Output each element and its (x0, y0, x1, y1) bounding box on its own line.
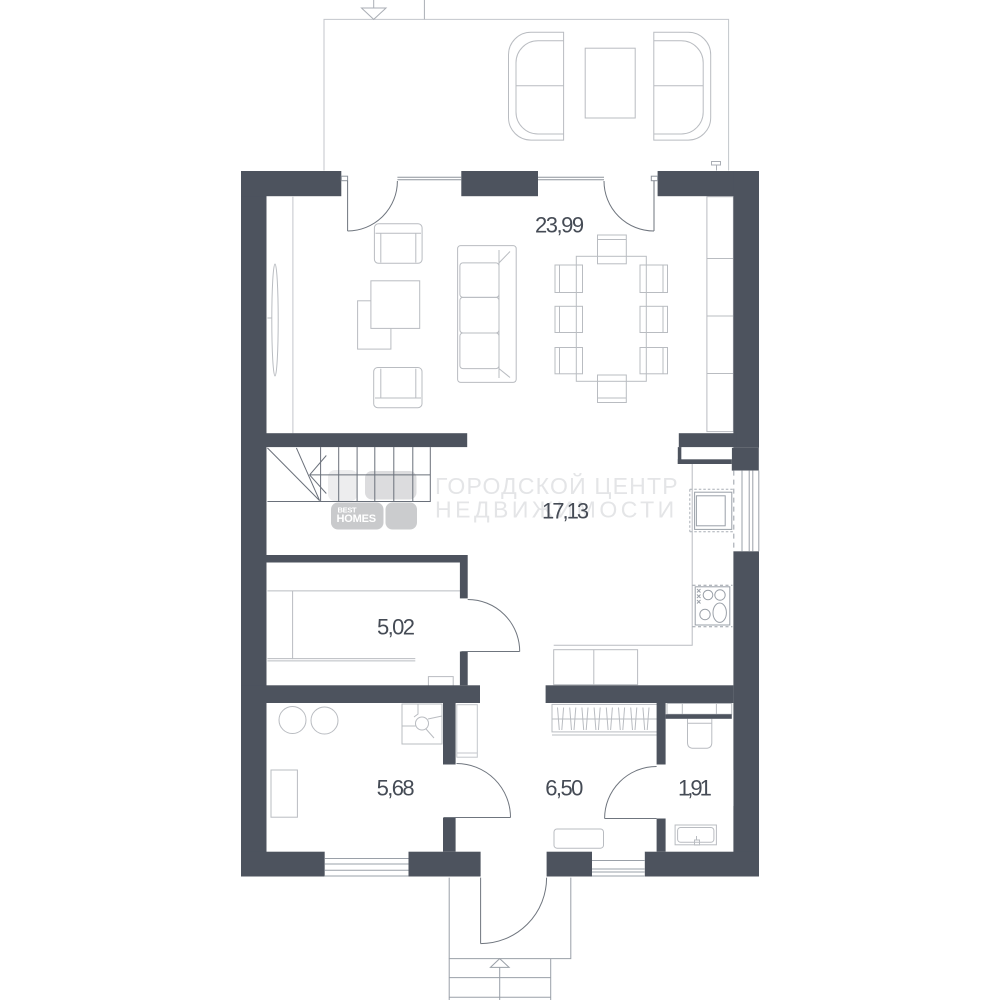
svg-text:ГОРОДСКОЙ ЦЕНТР: ГОРОДСКОЙ ЦЕНТР (435, 472, 679, 499)
svg-text:HOMES: HOMES (337, 513, 376, 525)
svg-text:17,13: 17,13 (542, 498, 589, 523)
svg-text:1,91: 1,91 (678, 775, 712, 800)
svg-text:5,02: 5,02 (377, 614, 415, 639)
svg-text:23,99: 23,99 (535, 212, 584, 237)
svg-text:5,68: 5,68 (377, 775, 415, 800)
svg-text:6,50: 6,50 (545, 775, 583, 800)
